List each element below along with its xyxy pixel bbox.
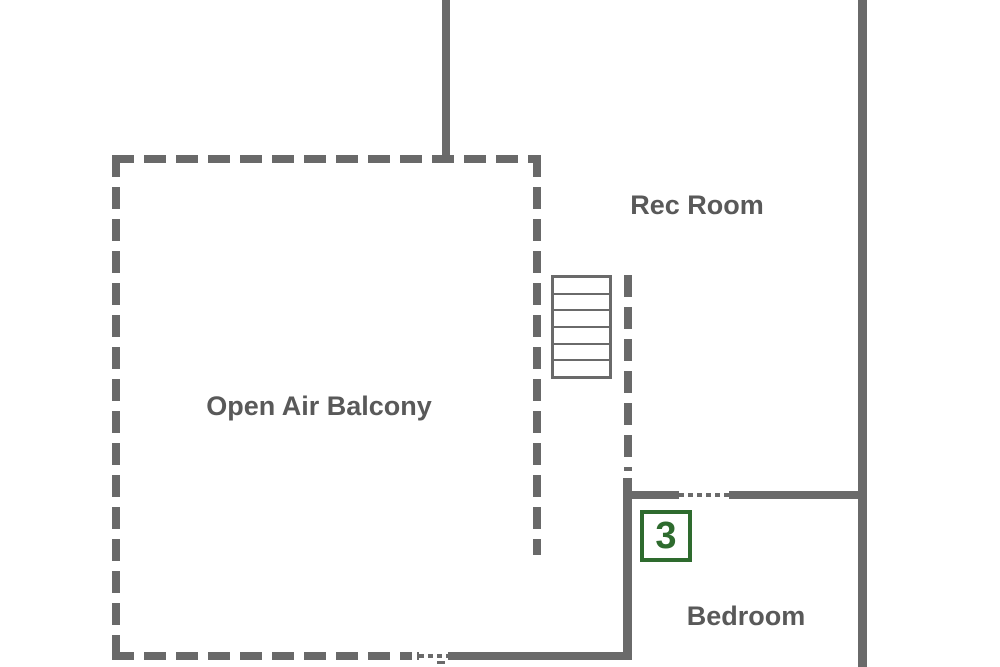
wall-right-exterior — [858, 0, 867, 667]
wall-bedroom-left — [623, 478, 632, 660]
balcony-boundary-top — [112, 155, 541, 163]
stair-tread — [554, 345, 609, 362]
balcony-boundary-bottom — [112, 652, 412, 660]
floor-plan: Rec Room Open Air Balcony Bedroom 3 — [0, 0, 1000, 667]
room-label-bedroom: Bedroom — [646, 601, 846, 632]
staircase — [551, 275, 612, 379]
room-label-open-air-balcony: Open Air Balcony — [169, 391, 469, 422]
room-number-marker: 3 — [640, 510, 692, 562]
door-opening-bottom-wall — [419, 651, 448, 661]
stair-tread — [554, 311, 609, 328]
wall-bottom-interior — [417, 652, 632, 660]
balcony-boundary-left — [112, 155, 120, 658]
stair-tread — [554, 361, 609, 376]
stair-tread — [554, 328, 609, 345]
stair-tread — [554, 295, 609, 312]
wall-bedroom-top — [623, 491, 858, 499]
door-opening-bedroom — [679, 490, 729, 500]
stair-tread — [554, 278, 609, 295]
balcony-boundary-right — [533, 155, 541, 555]
stair-boundary-dashed — [624, 275, 632, 471]
room-number-text: 3 — [655, 515, 676, 558]
wall-top-exterior — [442, 0, 450, 163]
room-label-rec-room: Rec Room — [597, 190, 797, 221]
